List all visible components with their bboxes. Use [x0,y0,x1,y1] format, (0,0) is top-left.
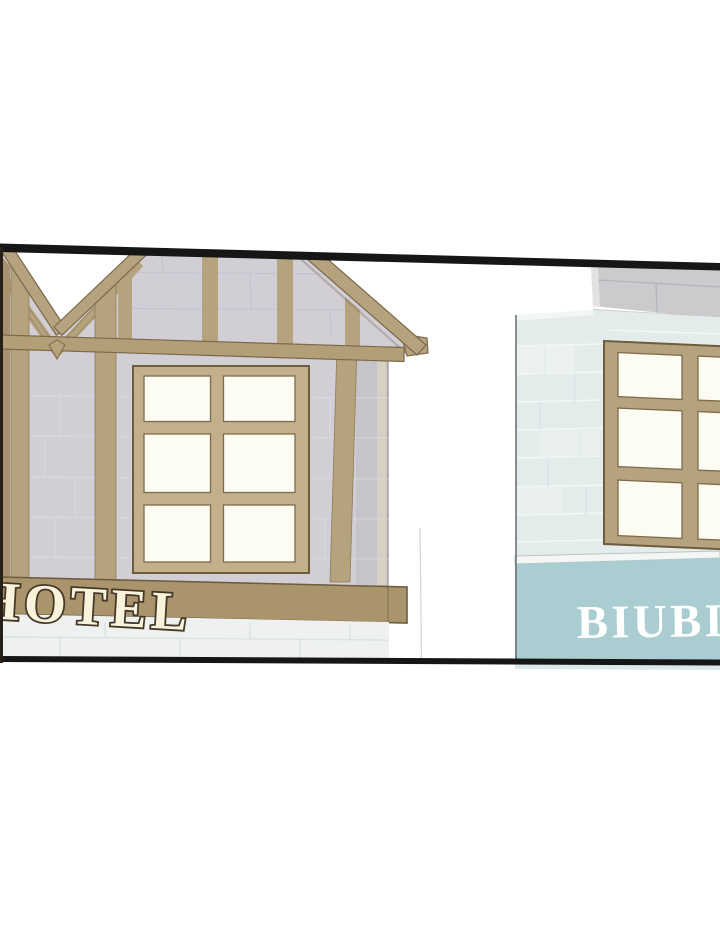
svg-text:HOTEL: HOTEL [0,570,194,643]
svg-text:BIUBIU: BIUBIU [576,594,720,649]
